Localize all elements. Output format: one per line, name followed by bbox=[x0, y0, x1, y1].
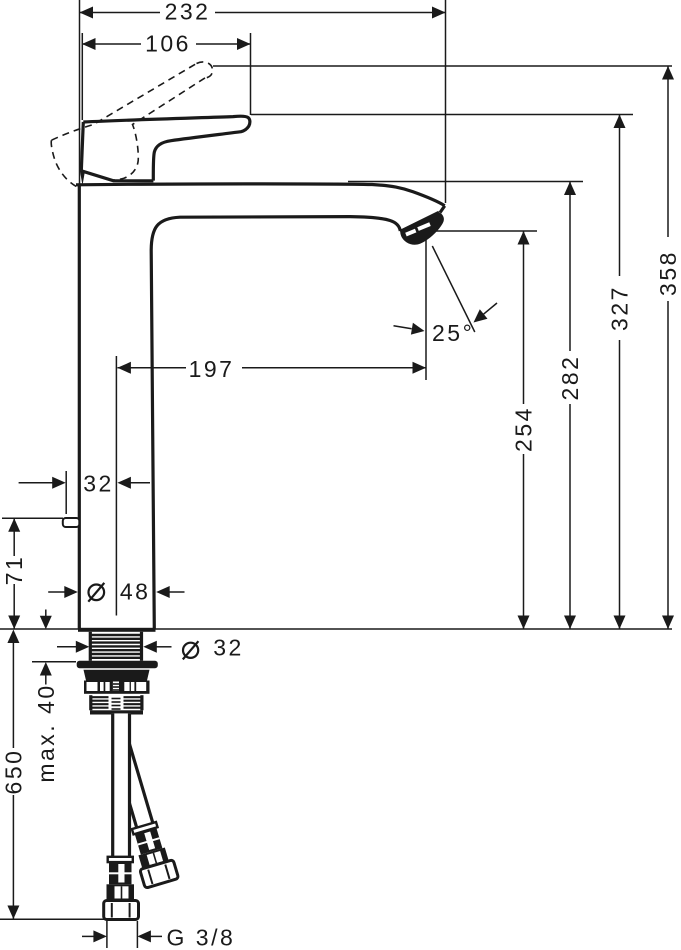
svg-text:32: 32 bbox=[213, 635, 244, 661]
svg-text:32: 32 bbox=[83, 470, 114, 496]
svg-text:197: 197 bbox=[189, 356, 235, 382]
svg-text:254: 254 bbox=[511, 406, 537, 452]
svg-text:25°: 25° bbox=[432, 320, 474, 346]
svg-text:282: 282 bbox=[557, 355, 583, 401]
svg-text:G 3/8: G 3/8 bbox=[167, 925, 236, 950]
svg-text:48: 48 bbox=[120, 579, 151, 605]
svg-text:232: 232 bbox=[165, 0, 211, 25]
svg-text:358: 358 bbox=[655, 250, 681, 296]
svg-text:650: 650 bbox=[0, 749, 26, 795]
svg-text:106: 106 bbox=[145, 30, 191, 56]
svg-text:max. 40: max. 40 bbox=[33, 683, 59, 782]
svg-text:71: 71 bbox=[1, 555, 27, 586]
svg-text:327: 327 bbox=[607, 285, 633, 331]
